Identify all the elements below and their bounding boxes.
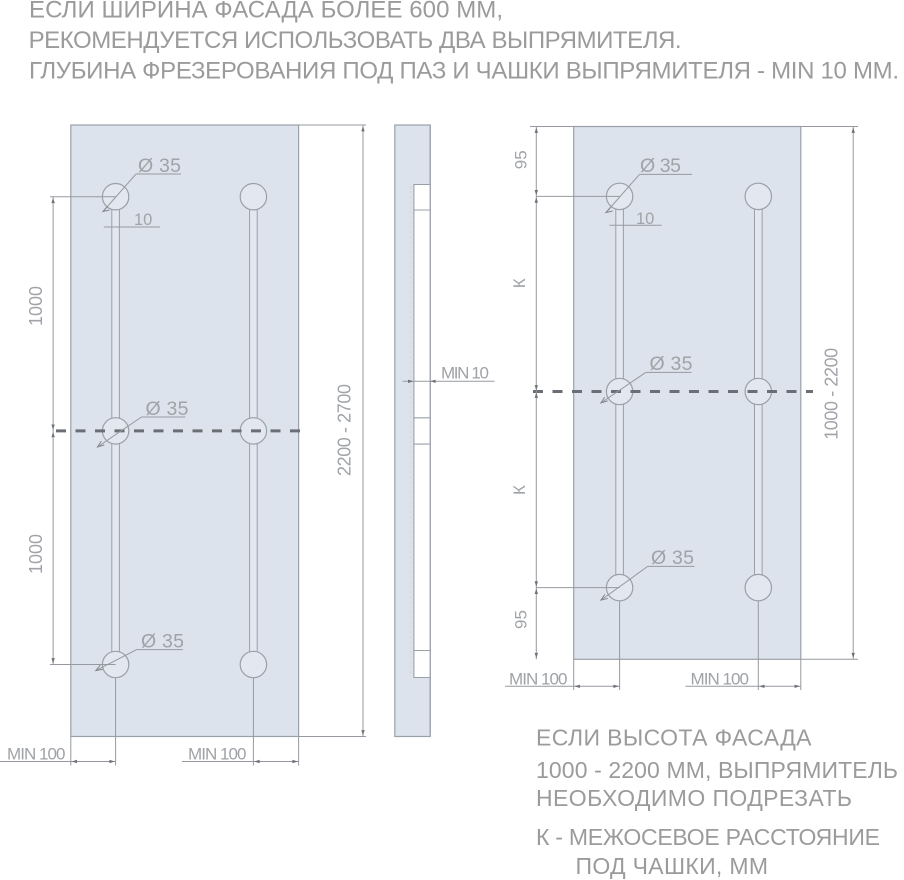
svg-text:1000 - 2200: 1000 - 2200 xyxy=(822,348,842,440)
svg-text:ЕСЛИ ВЫСОТА ФАСАДА: ЕСЛИ ВЫСОТА ФАСАДА xyxy=(536,725,812,751)
svg-text:1000: 1000 xyxy=(26,286,46,326)
svg-text:1000 - 2200 ММ, ВЫПРЯМИТЕЛЬ: 1000 - 2200 ММ, ВЫПРЯМИТЕЛЬ xyxy=(536,757,898,783)
svg-text:ПОД ЧАШКИ, ММ: ПОД ЧАШКИ, ММ xyxy=(576,853,769,879)
svg-text:ГЛУБИНА ФРЕЗЕРОВАНИЯ ПОД ПАЗ И: ГЛУБИНА ФРЕЗЕРОВАНИЯ ПОД ПАЗ И ЧАШКИ ВЫП… xyxy=(29,57,899,84)
svg-text:95: 95 xyxy=(511,150,530,169)
svg-text:MIN 100: MIN 100 xyxy=(509,669,568,688)
svg-text:Ø 35: Ø 35 xyxy=(138,155,181,177)
svg-text:2200 - 2700: 2200 - 2700 xyxy=(335,384,355,476)
svg-text:К: К xyxy=(510,278,529,288)
svg-text:Ø 35: Ø 35 xyxy=(146,398,189,420)
svg-text:MIN 10: MIN 10 xyxy=(441,363,489,382)
svg-text:Ø 35: Ø 35 xyxy=(651,547,694,569)
svg-text:ЕСЛИ ШИРИНА ФАСАДА БОЛЕЕ 600 М: ЕСЛИ ШИРИНА ФАСАДА БОЛЕЕ 600 ММ, xyxy=(29,0,503,23)
svg-text:РЕКОМЕНДУЕТСЯ ИСПОЛЬЗОВАТЬ ДВА: РЕКОМЕНДУЕТСЯ ИСПОЛЬЗОВАТЬ ДВА ВЫПРЯМИТЕ… xyxy=(29,27,682,54)
svg-text:MIN 100: MIN 100 xyxy=(7,745,66,764)
svg-text:MIN 100: MIN 100 xyxy=(188,745,247,764)
svg-text:MIN 100: MIN 100 xyxy=(691,669,750,688)
svg-text:1000: 1000 xyxy=(26,534,46,574)
svg-text:К: К xyxy=(510,485,529,495)
svg-text:Ø 35: Ø 35 xyxy=(650,353,693,375)
svg-text:10: 10 xyxy=(134,211,152,229)
svg-text:К - МЕЖОСЕВОЕ РАССТОЯНИЕ: К - МЕЖОСЕВОЕ РАССТОЯНИЕ xyxy=(536,824,880,850)
svg-text:Ø 35: Ø 35 xyxy=(640,155,681,177)
svg-text:НЕОБХОДИМО ПОДРЕЗАТЬ: НЕОБХОДИМО ПОДРЕЗАТЬ xyxy=(536,785,852,811)
svg-text:Ø 35: Ø 35 xyxy=(141,630,184,652)
svg-text:10: 10 xyxy=(636,210,654,228)
svg-text:95: 95 xyxy=(511,610,530,629)
